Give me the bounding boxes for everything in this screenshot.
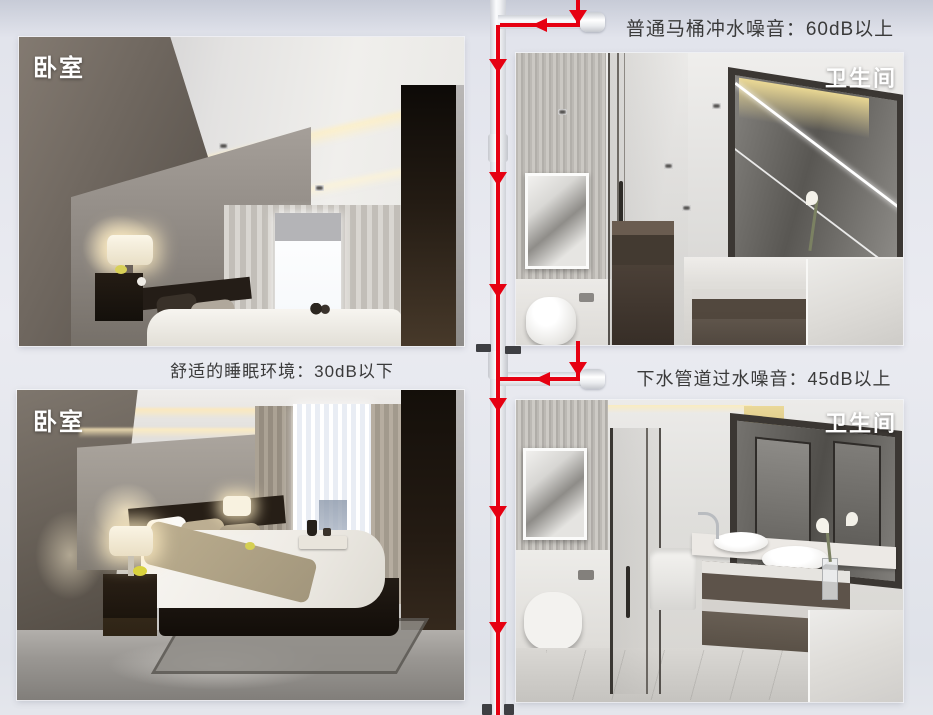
wardrobe [401, 85, 456, 346]
tp-holder [579, 293, 594, 302]
shower-handle [626, 566, 630, 618]
annotation-toilet-flush-noise: 普通马桶冲水噪音：60dB以上 [600, 14, 920, 41]
ceiling-cove [602, 405, 752, 413]
table-lamp [107, 235, 153, 265]
teacup [323, 528, 331, 536]
toilet [524, 592, 582, 650]
pipe-end-coupling-middle [580, 369, 605, 389]
nightstand [103, 574, 157, 636]
wall-strip-right [456, 390, 464, 662]
pipe-coupling-sleeve [488, 134, 508, 162]
annotation-sleep-environment: 舒适的睡眠环境：30dB以下 [122, 357, 442, 382]
room-label-bedroom-top: 卧室 [33, 48, 85, 83]
ceiling-spotlight [315, 185, 324, 191]
teapot-tray [307, 303, 333, 317]
bedroom-photo-bottom: 卧室 [17, 390, 464, 700]
table-lamp [109, 526, 153, 556]
annotation-drain-pipe-noise: 下水管道过水噪音：45dB以上 [608, 365, 920, 391]
tp-holder [578, 570, 594, 580]
pipe-clamp [504, 704, 514, 715]
shower-shelf-cabinet [612, 221, 674, 345]
pipe-coupling-sleeve [488, 351, 508, 379]
flowers [115, 265, 127, 274]
pipe-clamp [505, 346, 521, 354]
bathroom-photo-bottom: 卫生间 [516, 400, 903, 702]
window-shade [275, 213, 341, 241]
ceiling-spotlight [664, 163, 673, 169]
vessel-sink [714, 532, 768, 552]
pipe-clamp [482, 704, 492, 715]
ceiling-spotlight [682, 205, 691, 211]
calla-lily-bloom [846, 512, 858, 526]
bedroom-photo-top: 卧室 [19, 37, 464, 346]
ceiling-spotlight [219, 143, 228, 149]
vase [822, 558, 838, 600]
mirror-reflection [833, 441, 881, 558]
room-label-bathroom-bottom: 卫生间 [825, 406, 897, 438]
ceiling-spotlight [558, 109, 567, 115]
glass-frame-line [646, 428, 648, 694]
wall-strip-right [456, 85, 464, 346]
marble-block [806, 259, 903, 345]
table-lamp-2 [223, 496, 251, 516]
room-label-bedroom-bottom: 卧室 [33, 402, 85, 437]
room-label-bathroom-top: 卫生间 [825, 61, 897, 93]
nightstand [95, 273, 143, 321]
artwork-frame [523, 448, 587, 540]
toilet [526, 297, 576, 345]
drain-pipe-branch-middle [498, 372, 584, 386]
calla-lily-bloom [816, 518, 829, 533]
bathtub [650, 548, 696, 610]
tea-tray [299, 536, 347, 549]
teapot [307, 520, 317, 536]
calla-lily-bloom [806, 191, 818, 205]
artwork-frame [525, 173, 589, 269]
flowers-yellow-2 [245, 542, 255, 550]
bed-duvet [147, 309, 402, 346]
drain-pipe-branch-top [498, 15, 584, 29]
pipe-clamp [476, 344, 491, 352]
ceiling-spotlight [712, 103, 721, 109]
decor-ball [137, 277, 146, 286]
marble-block [808, 610, 903, 702]
bathroom-photo-top: 卫生间 [516, 53, 903, 345]
flowers-yellow [133, 566, 147, 576]
mirror-reflection [755, 437, 811, 547]
faucet [698, 512, 719, 539]
noise-comparison-diagram: 卧室 [0, 0, 933, 715]
